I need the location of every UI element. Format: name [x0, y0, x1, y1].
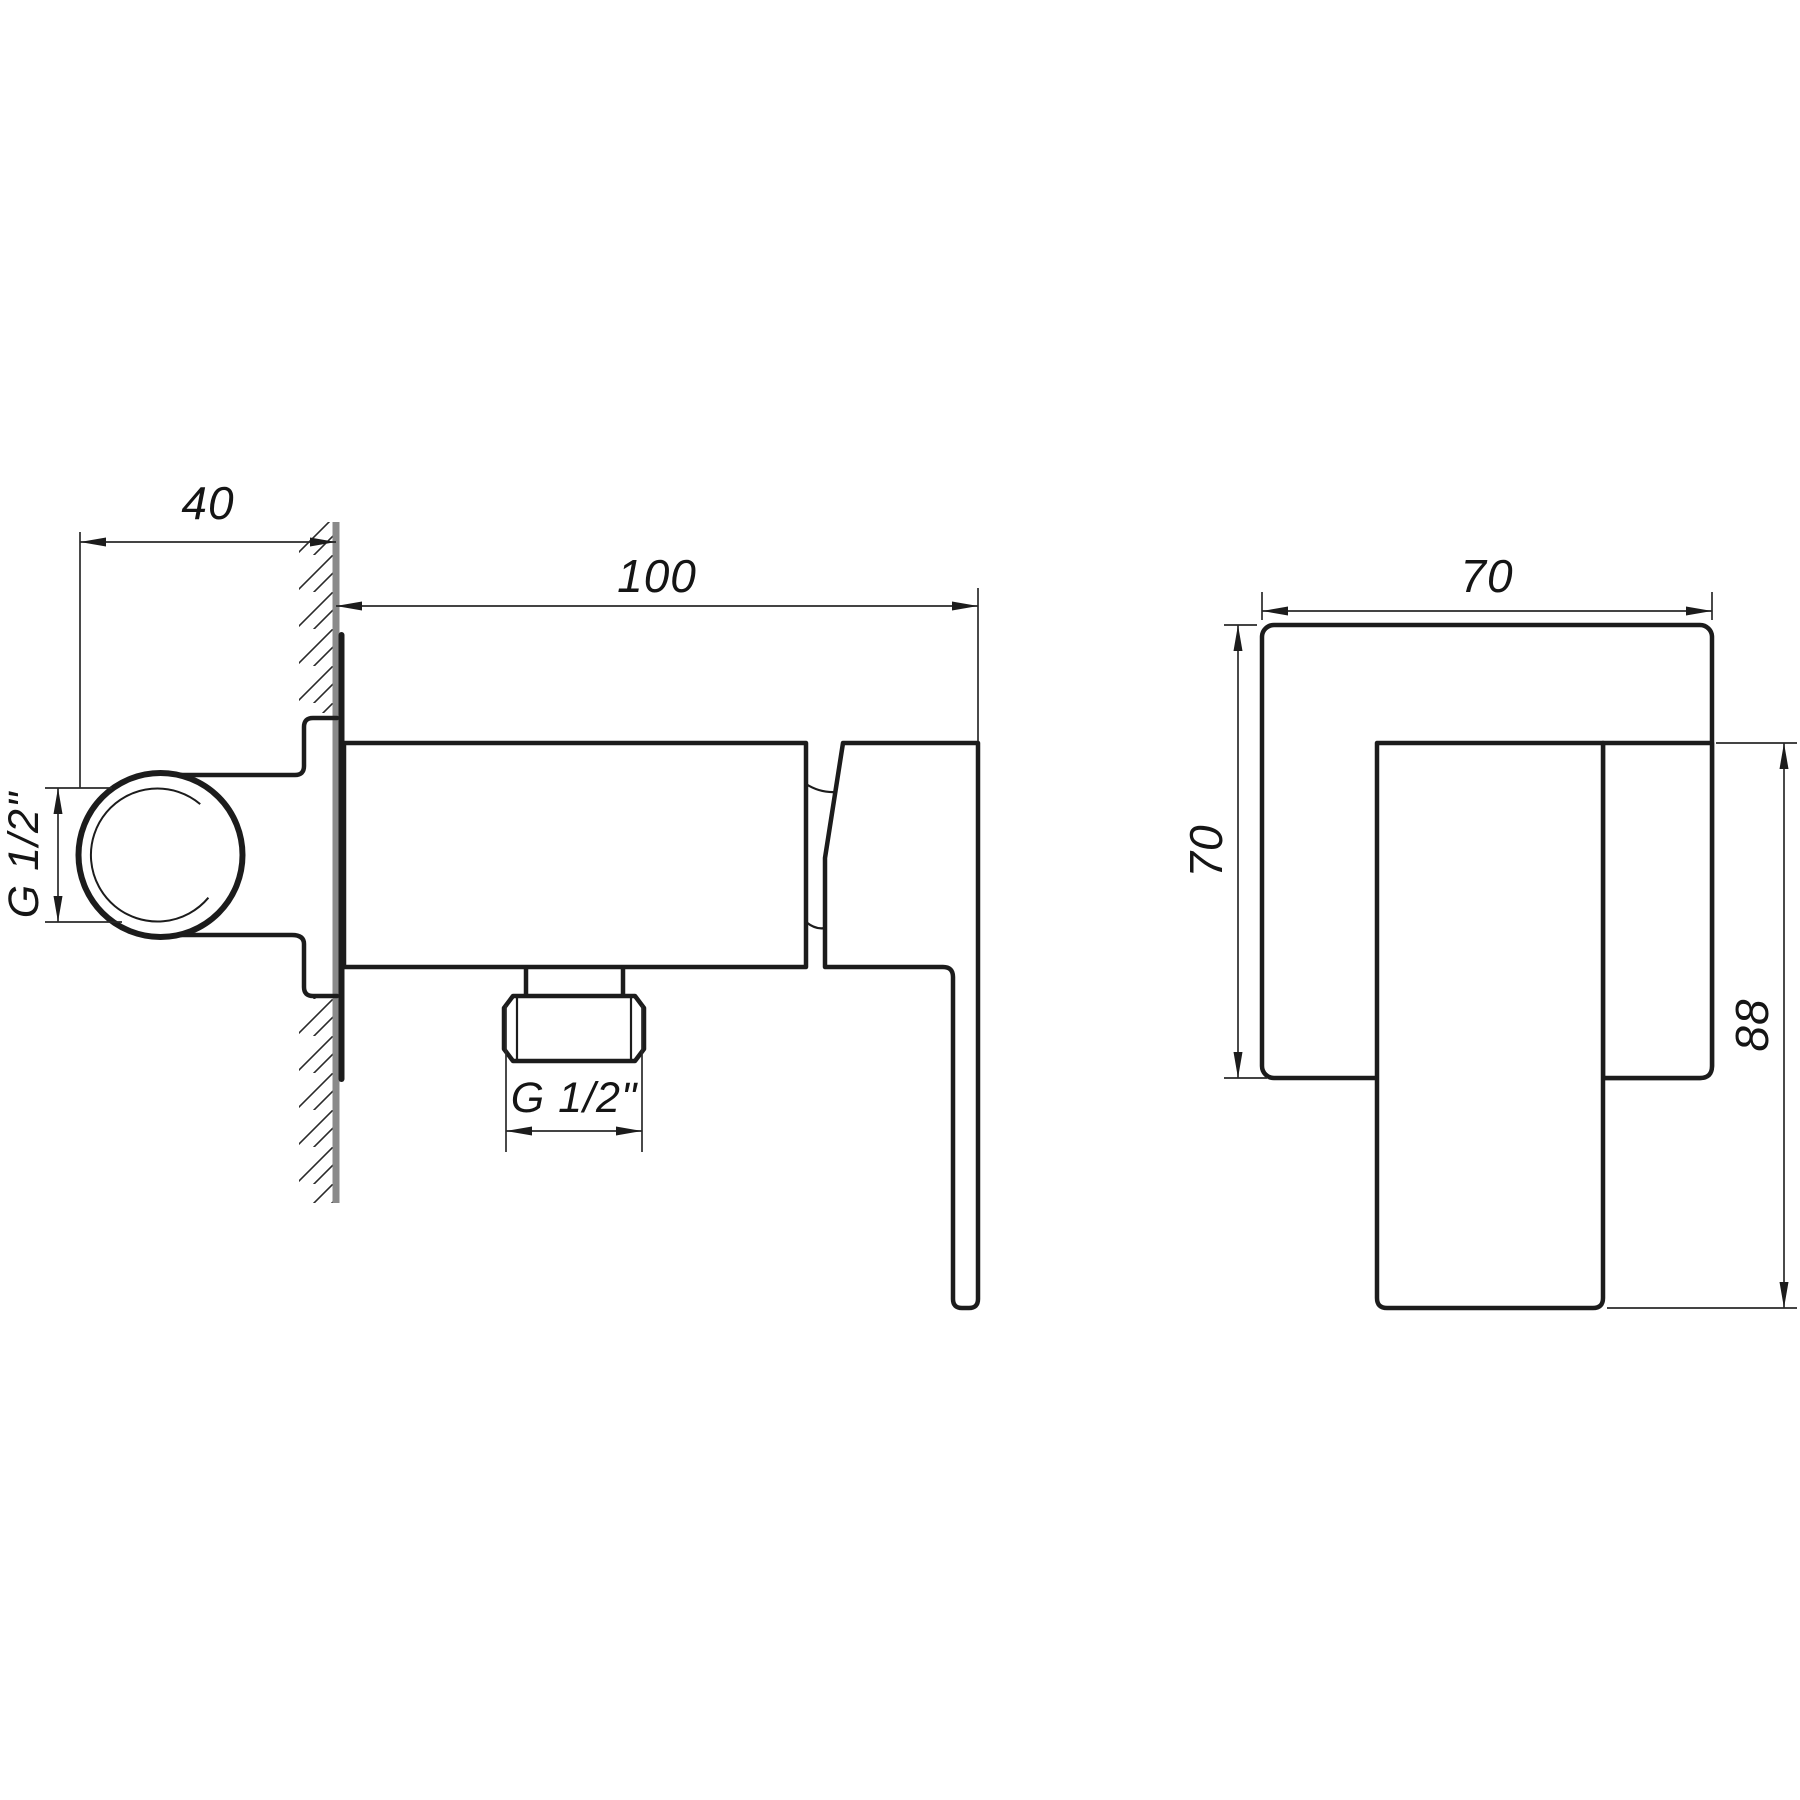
- dim-g12-outlet-arrow-left: [506, 1127, 532, 1136]
- dim-g12-inlet-label: G 1/2": [0, 791, 48, 918]
- technical-drawing-canvas: 40 100 G 1/2" G 1/2": [0, 0, 1800, 1800]
- front-handle-head: [1603, 743, 1712, 1078]
- dim-88-arrow-bottom: [1780, 1282, 1789, 1308]
- dim-88-label: 88: [1726, 998, 1778, 1051]
- front-view: 70 70 88: [1180, 550, 1797, 1308]
- dim-g12-inlet-arrow-top: [54, 788, 63, 814]
- drawing-svg: 40 100 G 1/2" G 1/2": [0, 0, 1800, 1800]
- dim-70-top-arrow-left: [1262, 607, 1288, 616]
- dim-88-arrow-top: [1780, 743, 1789, 769]
- inlet-elbow-outline-bottom: [162, 935, 337, 996]
- handle-contour-arc-upper: [806, 784, 836, 792]
- mixer-body-side: [344, 743, 806, 967]
- dim-100-arrow-right: [952, 602, 978, 611]
- side-view: 40 100 G 1/2" G 1/2": [0, 477, 978, 1308]
- wall-hatch-upper: [299, 522, 336, 713]
- handle-side: [825, 743, 978, 1308]
- inlet-elbow-outline-top: [162, 718, 337, 775]
- dim-depth-40: 40: [80, 477, 336, 788]
- dim-g12-outlet-label: G 1/2": [511, 1074, 638, 1122]
- dim-plate-height-70: 70: [1180, 625, 1267, 1078]
- dim-g12-inlet-arrow-bottom: [54, 896, 63, 922]
- dim-70-left-arrow-top: [1234, 625, 1243, 651]
- wall-hatch-lower: [299, 997, 336, 1203]
- dim-70-left-label: 70: [1180, 824, 1232, 877]
- dim-100-arrow-left: [336, 602, 362, 611]
- dim-40-arrow-left: [80, 538, 106, 547]
- dim-plate-width-70: 70: [1262, 550, 1712, 620]
- dim-70-left-arrow-bottom: [1234, 1052, 1243, 1078]
- dim-100-label: 100: [617, 550, 697, 602]
- outlet-nut: [504, 996, 644, 1061]
- inlet-port-outer-circle: [79, 773, 243, 937]
- handle-contour-arc-lower: [806, 922, 825, 928]
- dim-70-top-label: 70: [1460, 550, 1513, 602]
- front-handle-lever: [1377, 743, 1603, 1308]
- dim-length-100: 100: [336, 550, 978, 741]
- dim-70-top-arrow-right: [1686, 607, 1712, 616]
- dim-g12-outlet-arrow-right: [616, 1127, 642, 1136]
- dim-40-label: 40: [181, 477, 234, 529]
